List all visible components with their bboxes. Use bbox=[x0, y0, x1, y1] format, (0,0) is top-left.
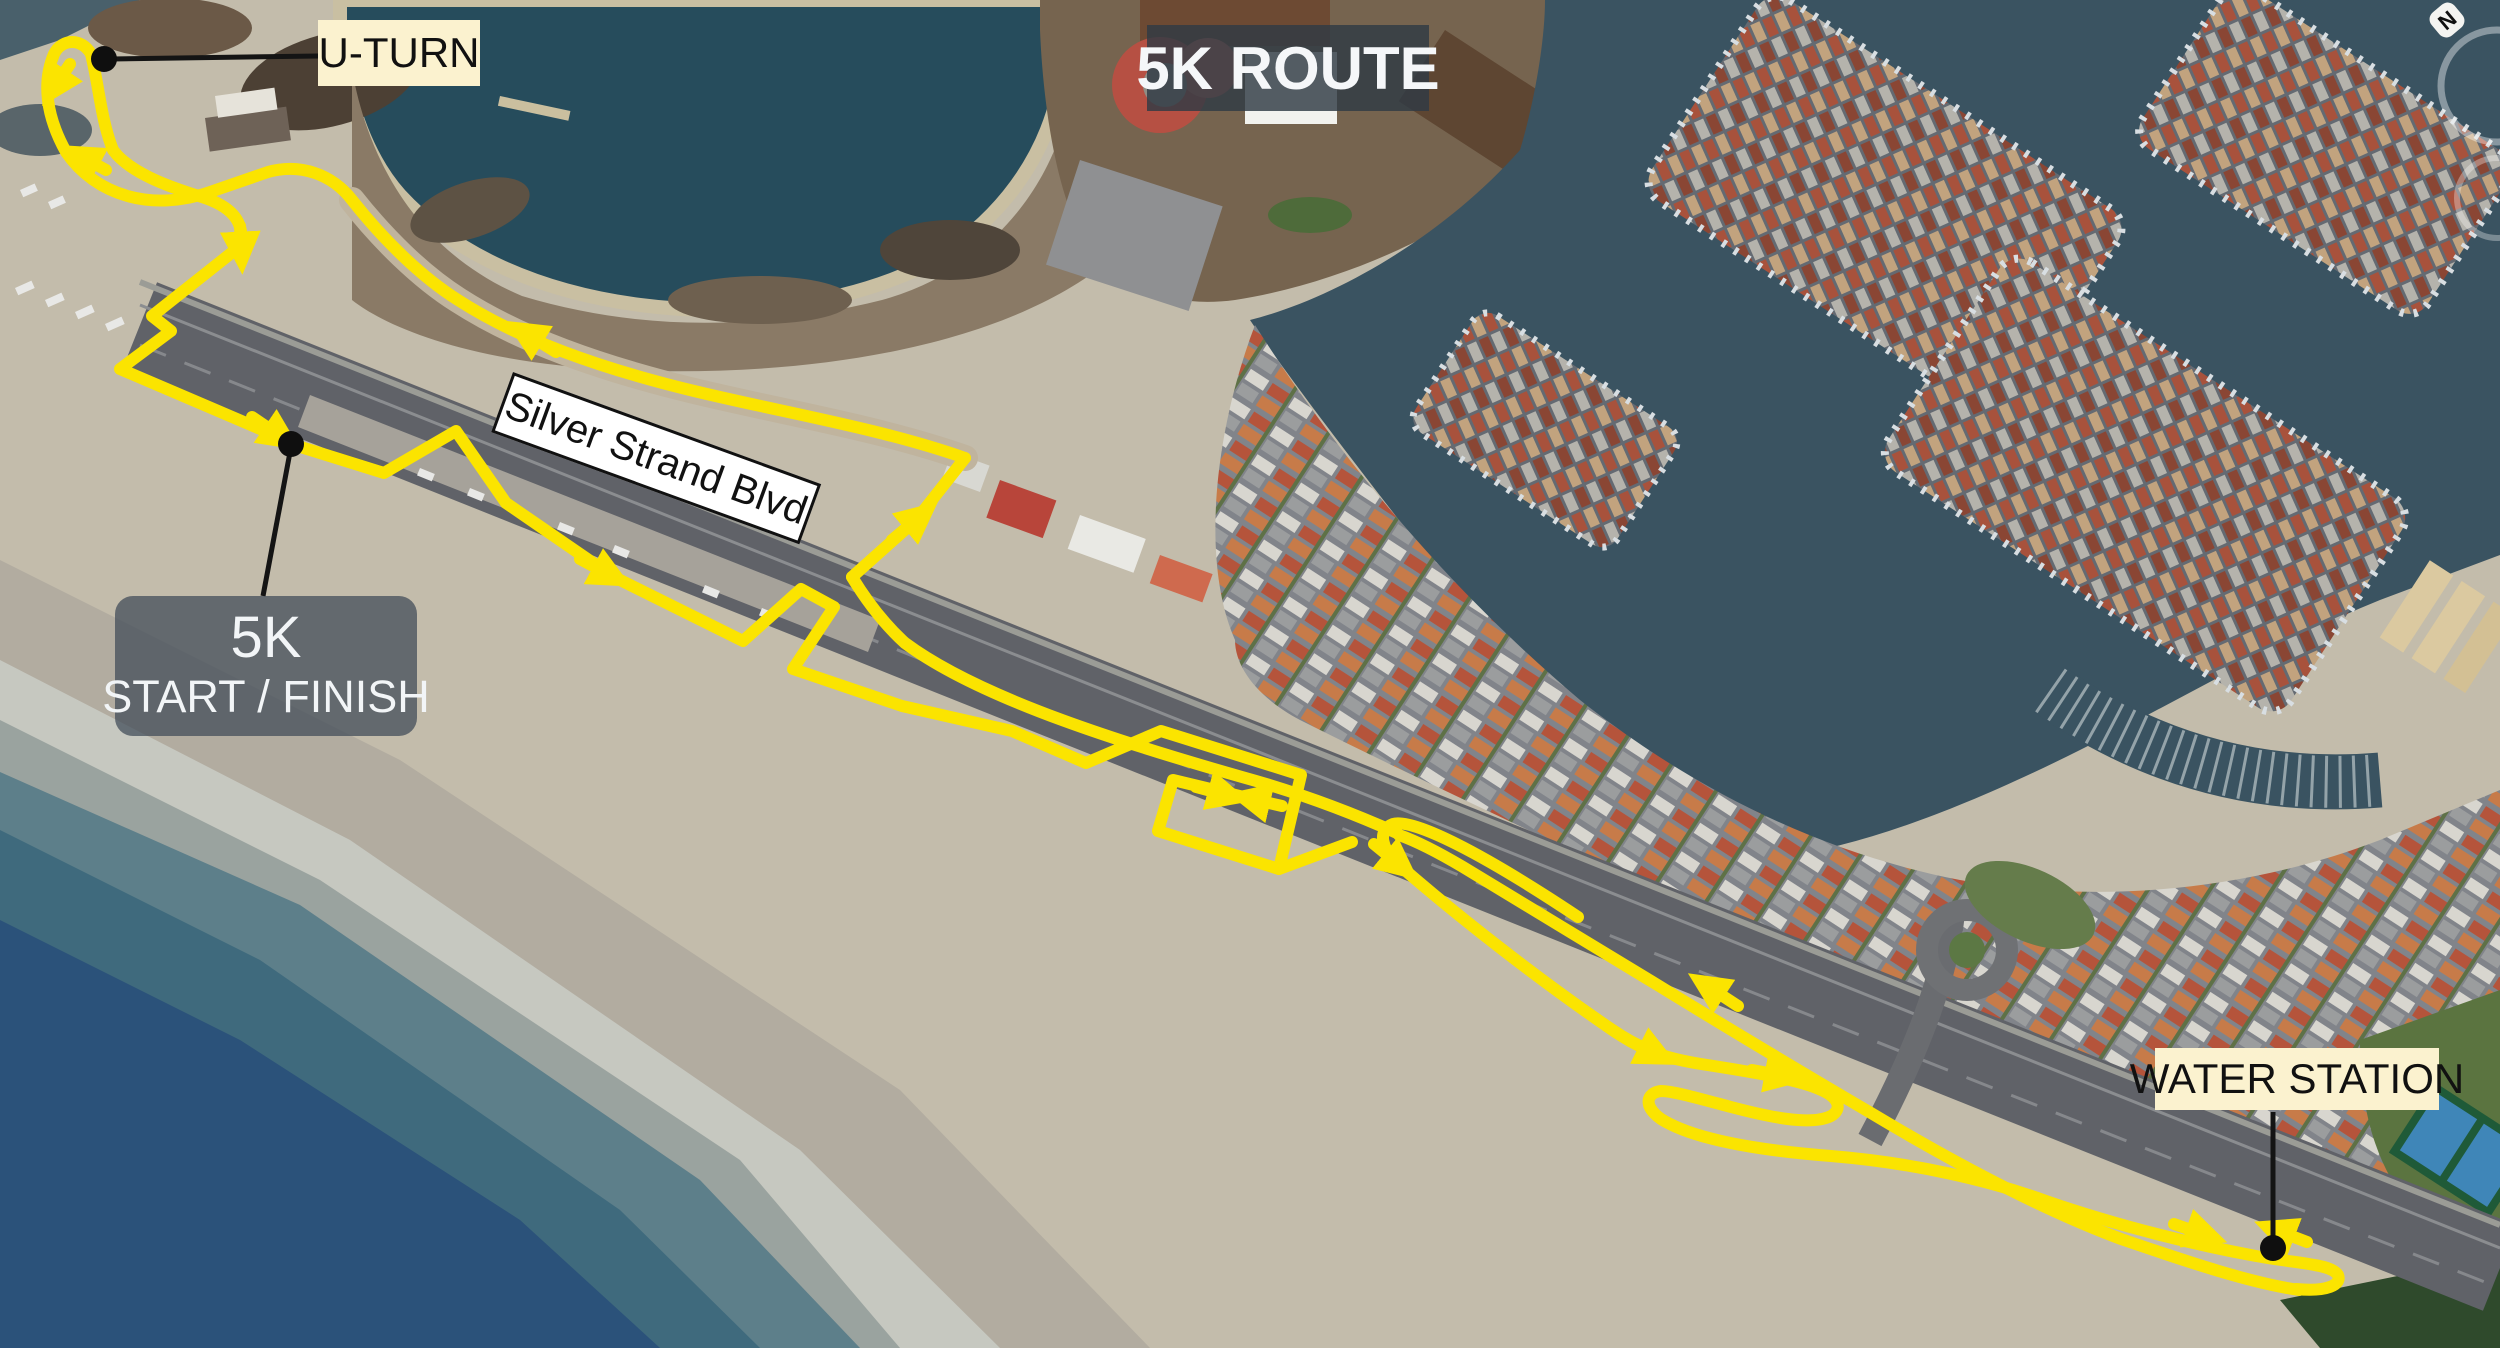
uturn-label-text: U-TURN bbox=[319, 29, 480, 77]
start-finish-distance-text: 5K bbox=[231, 607, 302, 669]
map-canvas[interactable]: N U-TURN 5K ROUTE Silver Strand Blvd 5K … bbox=[0, 0, 2500, 1348]
route-title-text: 5K ROUTE bbox=[1136, 34, 1439, 103]
route-title: 5K ROUTE bbox=[1147, 25, 1429, 111]
uturn-label: U-TURN bbox=[318, 20, 480, 86]
start-finish-point-dot bbox=[278, 431, 304, 457]
water-station-point-dot bbox=[2260, 1235, 2286, 1261]
start-finish-label: 5K START / FINISH bbox=[115, 596, 417, 736]
start-finish-text: START / FINISH bbox=[102, 669, 430, 725]
water-station-text: WATER STATION bbox=[2130, 1055, 2464, 1103]
water-station-label: WATER STATION bbox=[2155, 1048, 2439, 1110]
uturn-point-dot bbox=[91, 46, 117, 72]
uturn-leader-line bbox=[112, 56, 318, 59]
